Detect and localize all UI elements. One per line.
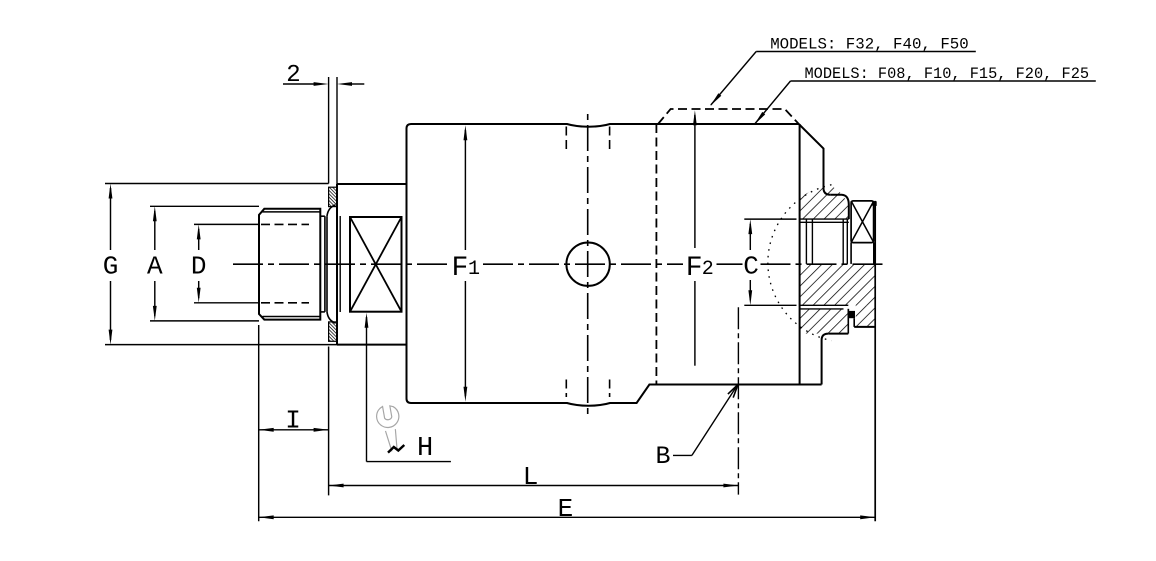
svg-text:1: 1	[468, 258, 480, 281]
svg-text:F: F	[686, 253, 703, 284]
svg-text:H: H	[417, 434, 433, 464]
svg-text:G: G	[103, 252, 119, 282]
svg-text:D: D	[191, 252, 207, 282]
svg-text:B: B	[655, 442, 670, 471]
svg-text:MODELS: F32, F40, F50: MODELS: F32, F40, F50	[770, 36, 968, 54]
svg-text:2: 2	[286, 62, 300, 89]
svg-text:F: F	[452, 253, 469, 284]
svg-text:MODELS: F08, F10, F15, F20, F2: MODELS: F08, F10, F15, F20, F25	[805, 65, 1090, 83]
svg-text:C: C	[743, 252, 759, 282]
svg-text:E: E	[558, 494, 574, 524]
svg-text:A: A	[147, 252, 163, 282]
svg-text:I: I	[285, 406, 301, 436]
svg-text:L: L	[523, 462, 539, 492]
svg-text:2: 2	[702, 258, 714, 281]
